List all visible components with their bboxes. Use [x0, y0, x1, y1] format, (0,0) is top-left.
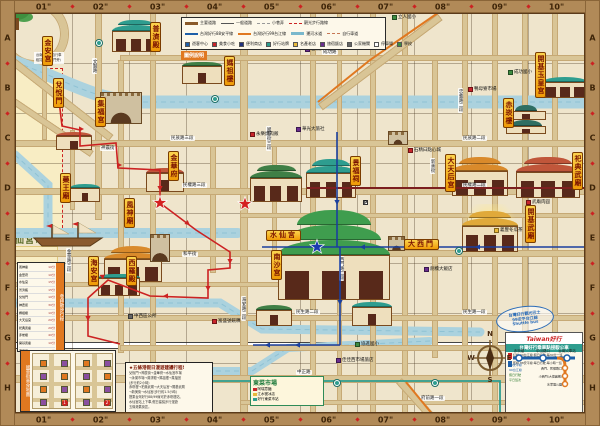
temple-jie-guan-ting-arch-illustration [150, 234, 170, 262]
poi-11: 協進國小 [355, 341, 379, 347]
poi-icon [424, 267, 429, 272]
itinerary-time: 40分 [48, 332, 55, 339]
 [115, 285, 124, 295]
poi-text: 劍橋大飯店 [430, 266, 453, 272]
coord-bottom-8: 08" [435, 415, 450, 424]
temple-label-kai-ji-yu-huang-gong: 開基玉皇宮 [535, 52, 546, 98]
road-label-15: 文賢路 [92, 58, 97, 74]
 [131, 39, 141, 51]
 [254, 186, 265, 201]
coord-top-5: 05" [264, 2, 279, 11]
legend-line-label: 運河水道 [306, 31, 322, 37]
itinerary-time: 10分 [48, 310, 55, 317]
legend-line-4: 台灣好行88安平線 [185, 31, 233, 37]
coord-left-B: B [4, 84, 10, 93]
itinerary-row: 水仙宮15分 [19, 279, 55, 287]
 [285, 271, 309, 299]
food-stall-icon [61, 360, 68, 367]
coord-top-9: 09" [492, 2, 507, 11]
food-inset-panel-0: 1 [32, 353, 71, 409]
east-market-row-icon [253, 388, 257, 392]
road-label-7: 中正路 [296, 370, 312, 375]
poi-text: 鴨母寮市場 [474, 86, 497, 92]
legend-icon-3: 好行站牌 [266, 41, 289, 47]
poi-icon [494, 228, 499, 233]
coord-right-G: G [589, 334, 596, 343]
poi-icon [392, 15, 397, 20]
 [459, 157, 501, 164]
legend-lines-row-1: 主要道路一般道路小巷弄觀光步行路線 [185, 20, 382, 26]
poi-text: 協進國小 [361, 341, 379, 347]
poi-icon [468, 87, 473, 92]
legend-icon-swatch [239, 42, 244, 47]
itinerary-row: 普濟殿15分 [19, 287, 55, 295]
poi-9: 立人國小 [392, 14, 416, 20]
legend-icon-2: 便利商店 [239, 41, 262, 47]
temple-label-ji-fu-gong: 集福宮 [95, 97, 106, 127]
road-label-5: 民生路二段 [295, 310, 320, 315]
legend-lines-row-2: 台灣好行88安平線台灣好行99台江線運河水道自行車道 [185, 31, 382, 37]
east-market-title: 東菜市場 [253, 378, 321, 387]
temple-si-dian-wu-miao-illustration [516, 150, 580, 198]
bus-stop-icon-1 [212, 96, 218, 102]
temple-dui-yue-men-illustration [100, 92, 142, 124]
legend-line-label: 觀光步行路線 [304, 20, 328, 26]
shuttle-note-swatch [508, 353, 512, 359]
food-stall-icon [40, 386, 47, 393]
legend-icon-swatch [266, 42, 271, 47]
poi-icon [128, 314, 133, 319]
 [521, 181, 535, 197]
food-stall-icon [83, 360, 90, 367]
 [70, 141, 77, 149]
legend-line-sample [185, 22, 198, 25]
itinerary-row: 金華府10分 [19, 272, 55, 280]
poi-icon [336, 358, 341, 363]
 [522, 129, 530, 133]
 [516, 172, 580, 198]
 [368, 314, 376, 325]
coord-top-6: 06" [321, 2, 336, 11]
legend-line-label: 主要道路 [200, 20, 216, 26]
shuttle-note-swatch [508, 361, 512, 367]
note-box-line: 五條港舊街區。 [129, 405, 209, 410]
poi-2: 石精臼點心城 [408, 147, 441, 153]
 [516, 164, 580, 171]
legend-icon-swatch [185, 42, 190, 47]
poi-text: 佳佳西市場旅店 [342, 357, 374, 363]
itinerary-time: 15分 [48, 287, 55, 294]
 [182, 66, 222, 84]
itinerary-title: 參拜散步行程 [56, 263, 64, 351]
poi-13: 中西區公所 [128, 313, 157, 319]
itinerary-name: 水仙宮 [19, 279, 28, 286]
 [70, 188, 100, 202]
poi-8: 佳佳西市場旅店 [336, 357, 374, 363]
legend-line-2: 小巷弄 [257, 20, 284, 26]
coord-top-7: 07" [378, 2, 393, 11]
legend-line-3: 觀光步行路線 [289, 20, 328, 26]
legend-line-label: 自行車道 [342, 31, 358, 37]
coord-bottom-6: 06" [321, 415, 336, 424]
 [326, 182, 337, 197]
poi-text: 立人國小 [398, 14, 416, 20]
itinerary-time: 10分 [48, 272, 55, 279]
road-label-13: 新美街 [430, 158, 435, 174]
legend-tab: 圖例說明 [181, 51, 207, 60]
walking-note-box: ★五條港假日漫遊建議行程!兌悅門→神農街→金華府→水仙宮市場→永樂市場→普濟殿→… [125, 362, 213, 419]
poi-14: P [363, 200, 368, 205]
food-stall-icon [61, 386, 68, 393]
 [278, 240, 390, 255]
itinerary-name: 普濟殿 [19, 287, 28, 294]
legend-icon-swatch [320, 42, 325, 47]
itinerary-row: 開基武廟10分 [19, 340, 55, 348]
poi-text: 中西區公所 [134, 313, 157, 319]
road-label-8: 府前路一段 [420, 396, 445, 401]
poi-text: 石精臼點心城 [414, 147, 441, 153]
 [128, 285, 137, 295]
 [287, 186, 298, 201]
 [502, 235, 514, 251]
coord-left-C: C [5, 134, 11, 143]
itinerary-time: 30分 [48, 302, 55, 309]
legend-icon-label: 遊客中心 [192, 41, 208, 47]
legend-icons-row: 遊客中心美食小吃便利商店好行站牌名產老店旅宿飯店公家機關停車場學校 [185, 41, 382, 47]
legend-line-7: 自行車道 [327, 31, 358, 37]
road-label-10: 國華街三段 [266, 126, 271, 151]
legend-icon-label: 便利商店 [246, 41, 262, 47]
 [524, 157, 572, 164]
 [310, 182, 321, 197]
legend-icon-5: 旅宿飯店 [320, 41, 343, 47]
coord-bottom-1: 01" [36, 415, 51, 424]
food-stall-icon [83, 373, 90, 380]
poi-text: 武廟肉圓 [532, 199, 550, 205]
 [352, 307, 392, 326]
 [546, 87, 555, 97]
 [257, 165, 296, 172]
coord-top-8: 08" [435, 2, 450, 11]
poi-icon [355, 342, 360, 347]
itinerary-name: 開基武廟 [19, 340, 31, 347]
itinerary-row: 兌悅門10分 [19, 294, 55, 302]
coord-bottom-7: 07" [378, 415, 393, 424]
legend-line-5: 台灣好行99台江線 [238, 31, 286, 37]
coord-bottom-3: 03" [150, 415, 165, 424]
legend-icon-swatch [397, 42, 402, 47]
 [250, 178, 302, 202]
legend-icon-label: 旅宿飯店 [327, 41, 343, 47]
temple-label-feng-shen-miao: 風神廟 [124, 198, 135, 228]
temple-label-dui-yue-men: 兌悅門 [53, 78, 64, 108]
food-stall-icon [104, 373, 111, 380]
itinerary-row: 大天后宮20分 [19, 317, 55, 325]
itinerary-name: 媽祖樓 [19, 310, 28, 317]
itinerary-name: 祀典武廟 [19, 325, 31, 332]
legend-line-0: 主要道路 [185, 20, 216, 26]
bus-stop-icon-0 [96, 40, 102, 46]
bus-stop-icon-5 [456, 248, 462, 254]
stamp-line: Shuttle bus [512, 320, 538, 327]
legend-icon-4: 名產老店 [293, 41, 316, 47]
temple-jin-an-gong-illustration [56, 124, 92, 150]
itinerary-name: 神農街 [19, 302, 28, 309]
food-stall-icon [83, 386, 90, 393]
poi-icon [296, 127, 301, 132]
legend-line-sample [238, 33, 251, 35]
coord-top-2: 02" [93, 2, 108, 11]
temple-yao-wang-miao-illustration [70, 176, 100, 202]
poi-6: 華光大旅社 [296, 126, 325, 132]
coord-left-A: A [4, 34, 10, 43]
road-label-3: 民權路三段 [182, 183, 207, 188]
coord-bottom-2: 02" [93, 415, 108, 424]
road-label-11: 西門路二段 [339, 256, 344, 281]
coord-left-E: E [5, 234, 10, 243]
poi-text: 義豐冬瓜茶 [500, 227, 523, 233]
temple-yong-le-market-temple-illustration [250, 158, 302, 202]
legend-line-sample [185, 33, 198, 35]
coord-right-B: B [589, 84, 595, 93]
 [574, 87, 583, 97]
coord-bottom-4: 04" [207, 415, 222, 424]
legend-icon-label: 學校 [404, 41, 412, 47]
shuttle-note-red: 紅線 99台江線:假日行駛,每30分一班 [506, 352, 582, 360]
poi-3: 鴨母寮市場 [468, 86, 497, 92]
shuttle-brand: Taiwan好行 [506, 333, 582, 344]
legend-icon-label: 公家機關 [354, 41, 370, 47]
itinerary-name: 金華府 [19, 272, 28, 279]
 [469, 211, 511, 218]
legend-line-label: 小巷弄 [272, 20, 284, 26]
poi-icon [408, 148, 413, 153]
legend-icon-swatch [293, 42, 298, 47]
itinerary-time: 10分 [48, 340, 55, 347]
poi-icon [212, 319, 217, 324]
 [111, 246, 155, 252]
temple-roundabout-castle-illustration [388, 131, 408, 145]
itinerary-time: 10分 [48, 294, 55, 301]
shuttle-title-bar: 台灣好行乘車點接駁公車 [506, 344, 582, 352]
legend-icon-0: 遊客中心 [185, 41, 208, 47]
itinerary-rows: 風神廟10分金華府10分水仙宮15分普濟殿15分兌悅門10分神農街30分媽祖樓1… [18, 263, 56, 351]
temple-label-nan-sha-gong: 南沙宮 [271, 250, 282, 280]
temple-label-jin-hua-fu: 金華府 [168, 151, 179, 181]
legend-icon-7: 停車場 [374, 41, 393, 47]
itinerary-name: 風神廟 [19, 264, 28, 271]
legend-icon-swatch [212, 42, 217, 47]
poi-icon [526, 200, 531, 205]
legend-line-sample [257, 23, 270, 24]
road-v-4 [150, 13, 156, 413]
legend-box: 主要道路一般道路小巷弄觀光步行路線台灣好行88安平線台灣好行99台江線運河水道自… [181, 17, 386, 50]
 [466, 235, 478, 251]
temple-shui-xian-gong-illustration [278, 200, 390, 300]
poi-icon: P [363, 200, 368, 205]
poi-text: 富盛號碗粿 [218, 318, 241, 324]
legend-icon-1: 美食小吃 [212, 41, 235, 47]
food-inset-panel-1: 2 [75, 353, 114, 409]
legend-icon-6: 公家機關 [347, 41, 370, 47]
 [82, 193, 88, 201]
temple-da-xi-men-gate-illustration [388, 236, 405, 251]
east-market-box: 東菜市場阿瑞意麵江水號冰店好行東菜市站 [250, 376, 324, 406]
temple-label-da-xi-men: 大西門 [404, 239, 439, 250]
road-label-17: 和平街 [182, 252, 198, 257]
road-label-14: 金華路三段 [66, 248, 71, 273]
temple-label-si-dian-wu-miao: 祀典武廟 [572, 152, 583, 190]
 [270, 315, 277, 325]
 [306, 173, 356, 198]
legend-icon-label: 美食小吃 [219, 41, 235, 47]
east-market-row-label: 好行東菜市站 [258, 397, 279, 402]
food-stall-icon [40, 399, 47, 406]
coord-right-E: E [590, 234, 595, 243]
itinerary-row: 祀典武廟20分 [19, 325, 55, 333]
 [198, 73, 206, 83]
road-v-12 [432, 55, 438, 358]
shuttle-note-text: 紅線 99台江線:假日行駛,每30分一班 [513, 354, 563, 358]
shuttle-bus-box: Taiwan好行台灣好行乘車點接駁公車紅線 99台江線:假日行駛,每30分一班藍… [505, 332, 583, 424]
 [484, 235, 496, 251]
 [56, 136, 92, 150]
coord-right-D: D [589, 184, 596, 193]
 [250, 171, 302, 178]
 [522, 114, 530, 118]
poi-text: 永樂燒肉飯 [256, 131, 279, 137]
legend-icon-label: 好行站牌 [273, 41, 289, 47]
road-label-4: 民權路二段 [462, 183, 487, 188]
poi-10: 成功國小 [508, 69, 532, 75]
 [297, 210, 372, 225]
coord-left-G: G [4, 334, 11, 343]
coord-top-3: 03" [150, 2, 165, 11]
itinerary-row: 風神廟10分 [19, 264, 55, 272]
 [560, 87, 569, 97]
itinerary-box: 風神廟10分金華府10分水仙宮15分普濟殿15分兌悅門10分神農街30分媽祖樓1… [17, 262, 65, 352]
 [256, 310, 292, 327]
road-label-12: 忠義路二段 [458, 88, 463, 113]
food-stall-icon [83, 399, 90, 406]
legend-line-sample [221, 23, 234, 24]
legend-line-label: 台灣好行99台江線 [253, 31, 286, 37]
poi-text: 成功國小 [514, 69, 532, 75]
east-market-row: 好行東菜市站 [253, 397, 321, 402]
road-label-1: 民族路三段 [170, 136, 195, 141]
 [312, 159, 350, 166]
coord-right-F: F [590, 284, 595, 293]
temple-da-tian-hou-gong-illustration [452, 150, 508, 196]
poi-1: 富盛號碗粿 [212, 318, 241, 324]
poi-text: 華光大旅社 [302, 126, 325, 132]
itinerary-row: 媽祖樓10分 [19, 310, 55, 318]
coord-right-A: A [589, 34, 595, 43]
poi-7: 劍橋大飯店 [424, 266, 453, 272]
 [543, 82, 587, 99]
food-inset-title: 國華街美食地圖 [21, 351, 30, 411]
coord-left-F: F [5, 284, 10, 293]
legend-line-sample [327, 33, 340, 34]
itinerary-row: 神農街30分 [19, 302, 55, 310]
 [462, 218, 518, 225]
 [270, 186, 281, 201]
poi-0: 永樂燒肉飯 [250, 131, 279, 137]
temple-label-shui-xian-gong: 水仙宮 [266, 230, 301, 241]
temple-label-yao-wang-miao: 藥王廟 [60, 173, 71, 203]
road-label-2: 民族路二段 [462, 136, 487, 141]
food-stall-icon [104, 386, 111, 393]
itinerary-time: 10分 [48, 264, 55, 271]
temple-label-jing-fu-ci: 景福祠 [350, 156, 361, 186]
temple-label-hai-an-gong: 海安宮 [88, 256, 99, 286]
food-stall-icon [40, 360, 47, 367]
food-street-inset: 國華街美食地圖12 [20, 350, 116, 412]
 [306, 166, 356, 173]
shuttle-note-text: 藍線 88安平線:每日行駛,每小時一班 [513, 362, 562, 366]
panel-number-badge: 1 [62, 400, 68, 406]
temple-label-xi-luo-dian: 西羅殿 [126, 256, 137, 286]
itinerary-name: 赤崁樓 [19, 332, 28, 339]
coord-top-1: 01" [36, 2, 51, 11]
temple-label-kai-ji-wu-miao: 開基武廟 [525, 205, 536, 243]
road-label-16: 神農街 [100, 146, 116, 151]
coord-left-H: H [4, 384, 11, 393]
temple-label-jin-an-gong: 金安宮 [42, 36, 53, 66]
temple-nan-sha-gong-illustration [256, 296, 292, 326]
legend-icon-swatch [374, 42, 379, 47]
coord-right-C: C [590, 134, 596, 143]
coord-top-4: 04" [207, 2, 222, 11]
east-market-row-icon [253, 393, 257, 397]
 [452, 164, 508, 171]
temple-bao-xi-gong-illustration [352, 292, 392, 326]
 [287, 225, 380, 240]
itinerary-name: 兌悅門 [19, 294, 28, 301]
east-market-row-icon [253, 398, 257, 402]
coord-left-D: D [4, 184, 11, 193]
bus-stop-icon-4 [432, 380, 438, 386]
 [161, 180, 169, 191]
 [492, 180, 504, 195]
food-stall-icon [61, 373, 68, 380]
legend-line-sample [289, 23, 302, 24]
itinerary-time: 20分 [48, 325, 55, 332]
temple-jing-fu-ci-illustration [306, 152, 356, 198]
itinerary-time: 15分 [48, 279, 55, 286]
tainan-temple-tour-map[interactable]: 水仙宮市場保西宮沙淘宮下大道米糕金安宮普濟殿媽祖樓兌悅門集福宮藥王廟金華府風神廟… [0, 0, 600, 426]
legend-icon-8: 學校 [397, 41, 412, 47]
 [116, 39, 126, 51]
itinerary-row: 赤崁樓40分 [19, 332, 55, 340]
itinerary-name: 大天后宮 [19, 317, 31, 324]
 [541, 181, 555, 197]
road-label-6: 民生路一段 [462, 310, 487, 315]
food-stall-icon [40, 373, 47, 380]
coord-top-10: 10" [549, 2, 564, 11]
legend-line-label: 一般道路 [236, 20, 252, 26]
legend-line-label: 台灣好行88安平線 [200, 31, 233, 37]
 [145, 267, 157, 281]
coord-bottom-5: 05" [264, 415, 279, 424]
itinerary-time: 20分 [48, 317, 55, 324]
legend-line-6: 運河水道 [291, 31, 322, 37]
poi-icon [508, 70, 513, 75]
temple-label-pu-ji-dian: 普濟殿 [150, 22, 161, 52]
coord-bottom-10: 10" [549, 415, 564, 424]
coord-bottom-9: 09" [492, 415, 507, 424]
legend-line-sample [291, 32, 304, 35]
